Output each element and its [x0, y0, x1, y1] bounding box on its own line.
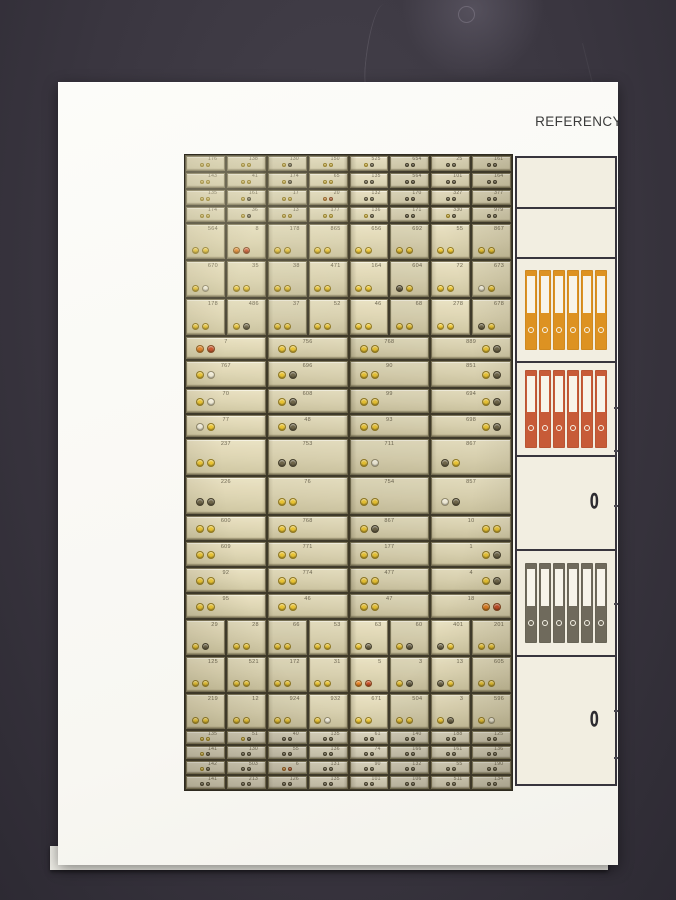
- deposit-box: 176: [186, 156, 225, 171]
- deposit-box: 694: [431, 389, 511, 413]
- zero-mark: 0: [590, 709, 599, 730]
- binder-label-window: [541, 569, 549, 606]
- keyhole-icon: [405, 163, 409, 167]
- keyholes: [478, 285, 495, 292]
- box-row: 927744774: [186, 568, 511, 592]
- keyholes: [482, 525, 501, 533]
- keyhole-icon: [452, 767, 456, 771]
- box-number: 41: [252, 174, 258, 180]
- box-number: 596: [494, 696, 504, 702]
- deposit-box: 40: [268, 731, 307, 744]
- keyholes: [355, 680, 372, 687]
- keyhole-icon: [282, 180, 286, 184]
- box-number: 125: [208, 659, 218, 665]
- keyholes: [323, 737, 333, 741]
- deposit-box: 237: [186, 439, 266, 475]
- keyhole-icon: [206, 197, 210, 201]
- keyhole-icon: [371, 603, 379, 611]
- keyhole-icon: [196, 577, 204, 585]
- keyholes: [396, 285, 413, 292]
- keyholes: [282, 180, 292, 184]
- keyhole-icon: [200, 737, 204, 741]
- keyhole-icon: [364, 180, 368, 184]
- keyholes: [314, 323, 331, 330]
- deposit-box: 10: [431, 516, 511, 540]
- keyhole-icon: [323, 214, 327, 218]
- keyholes: [487, 782, 497, 786]
- keyholes: [355, 643, 372, 650]
- box-number: 70: [187, 391, 265, 397]
- keyhole-icon: [452, 782, 456, 786]
- keyholes: [360, 525, 379, 533]
- box-number: 66: [293, 622, 300, 628]
- deposit-box: 8: [227, 224, 266, 259]
- keyhole-icon: [196, 551, 204, 559]
- keyhole-icon: [446, 767, 450, 771]
- keyhole-icon: [278, 423, 286, 431]
- keyhole-icon: [324, 285, 331, 292]
- keyhole-icon: [406, 323, 413, 330]
- box-number: 31: [334, 659, 341, 665]
- binder-icon: [567, 563, 579, 643]
- page-edge-notch: [614, 603, 618, 605]
- deposit-box: 753: [268, 439, 348, 475]
- keyholes: [196, 577, 215, 585]
- deposit-box: 132: [350, 190, 389, 205]
- keyholes: [200, 767, 210, 771]
- keyhole-icon: [493, 214, 497, 218]
- keyhole-icon: [196, 345, 204, 353]
- deposit-box: 164: [350, 261, 389, 297]
- box-number: 604: [412, 263, 422, 269]
- keyhole-icon: [441, 459, 449, 467]
- deposit-box: 135: [350, 173, 389, 188]
- keyhole-icon: [487, 782, 491, 786]
- box-row: 1351611720132170327377: [186, 190, 511, 205]
- keyhole-icon: [284, 285, 291, 292]
- box-number: 656: [371, 226, 381, 232]
- deposit-box: 177: [350, 542, 430, 566]
- keyhole-icon: [370, 752, 374, 756]
- keyhole-icon: [452, 498, 460, 506]
- keyhole-icon: [241, 782, 245, 786]
- binder-label-window: [555, 376, 563, 412]
- keyholes: [200, 752, 210, 756]
- deposit-box: 55: [431, 761, 470, 774]
- keyhole-icon: [329, 767, 333, 771]
- deposit-box: 3: [431, 694, 470, 729]
- keyhole-icon: [329, 163, 333, 167]
- deposit-box: 889: [431, 337, 511, 359]
- keyhole-icon: [360, 551, 368, 559]
- deposit-box: 521: [227, 657, 266, 692]
- keyhole-icon: [278, 371, 286, 379]
- keyholes: [446, 214, 456, 218]
- deposit-box: 932: [309, 694, 348, 729]
- keyhole-icon: [314, 285, 321, 292]
- keyhole-icon: [493, 163, 497, 167]
- box-number: 857: [432, 479, 510, 485]
- deposit-box: 867: [350, 516, 430, 540]
- keyhole-icon: [487, 180, 491, 184]
- keyhole-icon: [411, 163, 415, 167]
- box-row: 1434117465135564101164: [186, 173, 511, 188]
- deposit-box: 170: [390, 190, 429, 205]
- keyholes: [437, 643, 454, 650]
- keyhole-icon: [324, 643, 331, 650]
- deposit-box: 867: [431, 439, 511, 475]
- reference-row-binders: [517, 551, 615, 657]
- binder-hole-icon: [556, 425, 562, 431]
- box-number: 600: [187, 518, 265, 524]
- keyholes: [323, 197, 333, 201]
- keyhole-icon: [196, 525, 204, 533]
- keyhole-icon: [396, 323, 403, 330]
- keyhole-icon: [487, 737, 491, 741]
- keyhole-icon: [207, 371, 215, 379]
- deposit-box: 177: [309, 207, 348, 222]
- keyhole-icon: [447, 643, 454, 650]
- keyhole-icon: [207, 398, 215, 406]
- deposit-box: 126: [268, 776, 307, 789]
- keyhole-icon: [202, 643, 209, 650]
- keyholes: [364, 197, 374, 201]
- keyhole-icon: [241, 197, 245, 201]
- keyholes: [282, 752, 292, 756]
- box-number: 101: [453, 174, 462, 180]
- keyhole-icon: [274, 643, 281, 650]
- deposit-box: 77: [186, 415, 266, 437]
- box-number: 564: [208, 226, 218, 232]
- keyhole-icon: [452, 163, 456, 167]
- keyholes: [360, 577, 379, 585]
- deposit-box: 65: [309, 173, 348, 188]
- keyhole-icon: [478, 717, 485, 724]
- box-row: 17848637524668278678: [186, 299, 511, 335]
- keyhole-icon: [284, 680, 291, 687]
- keyholes: [437, 247, 454, 254]
- keyholes: [196, 459, 215, 467]
- deposit-box: 72: [431, 261, 470, 297]
- keyhole-icon: [360, 459, 368, 467]
- keyhole-icon: [488, 247, 495, 254]
- deposit-box: 188: [431, 731, 470, 744]
- deposit-box: 471: [309, 261, 348, 297]
- binder-label-window: [597, 276, 605, 313]
- deposit-box: 90: [350, 761, 389, 774]
- keyholes: [396, 680, 413, 687]
- deposit-box: 178: [268, 224, 307, 259]
- keyholes: [282, 163, 292, 167]
- binder-label-window: [527, 276, 535, 313]
- binder-label-window: [583, 276, 591, 313]
- keyholes: [278, 603, 297, 611]
- keyhole-icon: [487, 752, 491, 756]
- keyholes: [355, 323, 372, 330]
- keyhole-icon: [192, 247, 199, 254]
- keyhole-icon: [360, 423, 368, 431]
- keyholes: [323, 163, 333, 167]
- keyholes: [278, 498, 297, 506]
- keyhole-icon: [207, 498, 215, 506]
- keyhole-icon: [243, 323, 250, 330]
- keyholes: [487, 197, 497, 201]
- keyhole-icon: [493, 525, 501, 533]
- deposit-box: 174: [268, 173, 307, 188]
- keyhole-icon: [289, 459, 297, 467]
- box-number: 150: [331, 157, 340, 163]
- keyhole-icon: [355, 323, 362, 330]
- box-row: 22676754857: [186, 477, 511, 514]
- binder-label-window: [555, 569, 563, 606]
- keyhole-icon: [329, 752, 333, 756]
- keyhole-icon: [411, 180, 415, 184]
- box-row: 292866536360401201: [186, 620, 511, 655]
- keyhole-icon: [493, 577, 501, 585]
- box-row: 141213126135101106511134: [186, 776, 511, 789]
- keyhole-icon: [355, 285, 362, 292]
- keyhole-icon: [233, 247, 240, 254]
- keyholes: [314, 643, 331, 650]
- keyholes: [405, 214, 415, 218]
- keyholes: [360, 423, 379, 431]
- deposit-box: 13: [268, 207, 307, 222]
- keyhole-icon: [493, 752, 497, 756]
- box-row: 237753711867: [186, 439, 511, 475]
- box-number: 6: [296, 762, 299, 768]
- keyhole-icon: [487, 767, 491, 771]
- keyhole-icon: [314, 643, 321, 650]
- keyhole-icon: [202, 285, 209, 292]
- binder-hole-icon: [556, 620, 562, 626]
- deposit-box: 46: [268, 594, 348, 618]
- keyholes: [487, 767, 497, 771]
- keyholes: [360, 551, 379, 559]
- binder-label-window: [569, 569, 577, 606]
- box-number: 201: [494, 622, 504, 628]
- box-number: 3: [460, 696, 463, 702]
- keyhole-icon: [202, 247, 209, 254]
- binder-icon: [539, 563, 551, 643]
- keyholes: [482, 577, 501, 585]
- deposit-box: 604: [390, 261, 429, 297]
- deposit-box: 503: [227, 761, 266, 774]
- deposit-box: 201: [472, 620, 511, 655]
- box-number: 525: [372, 157, 381, 163]
- deposit-box: 130: [227, 746, 266, 759]
- binder-hole-icon: [542, 425, 548, 431]
- keyhole-icon: [206, 782, 210, 786]
- deposit-box: 140: [390, 731, 429, 744]
- box-number: 35: [252, 263, 259, 269]
- box-number: 161: [494, 157, 503, 163]
- keyhole-icon: [371, 525, 379, 533]
- box-number: 17: [293, 191, 299, 197]
- deposit-box: 13: [431, 657, 470, 692]
- keyholes: [446, 197, 456, 201]
- deposit-box: 135: [186, 190, 225, 205]
- keyhole-icon: [364, 214, 368, 218]
- keyholes: [233, 323, 250, 330]
- keyholes: [360, 371, 379, 379]
- box-row: 7060899694: [186, 389, 511, 413]
- deposit-box: 38: [268, 261, 307, 297]
- keyhole-icon: [478, 247, 485, 254]
- keyhole-icon: [411, 737, 415, 741]
- deposit-box: 37: [268, 299, 307, 335]
- deposit-box: 771: [268, 542, 348, 566]
- deposit-box: 135: [309, 731, 348, 744]
- keyholes: [323, 767, 333, 771]
- keyholes: [323, 180, 333, 184]
- keyhole-icon: [289, 603, 297, 611]
- keyhole-icon: [370, 214, 374, 218]
- keyhole-icon: [278, 603, 286, 611]
- box-number: 867: [351, 518, 429, 524]
- deposit-box: 52: [309, 299, 348, 335]
- page-edge-notch: [614, 710, 618, 712]
- box-number: 694: [432, 391, 510, 397]
- keyhole-icon: [192, 285, 199, 292]
- box-number: 678: [494, 301, 504, 307]
- keyhole-icon: [278, 498, 286, 506]
- deposit-box: 135: [309, 776, 348, 789]
- keyholes: [196, 345, 215, 353]
- keyhole-icon: [282, 752, 286, 756]
- deposit-box: 174: [186, 207, 225, 222]
- keyhole-icon: [274, 680, 281, 687]
- box-number: 46: [375, 301, 382, 307]
- box-number: 174: [290, 174, 299, 180]
- deposit-box: 226: [186, 477, 266, 514]
- deposit-box: 656: [350, 224, 389, 259]
- deposit-box: 99: [350, 389, 430, 413]
- keyhole-icon: [447, 323, 454, 330]
- keyhole-icon: [447, 285, 454, 292]
- box-number: 979: [494, 208, 503, 214]
- deposit-box: 696: [268, 361, 348, 387]
- keyhole-icon: [371, 498, 379, 506]
- binder-icon: [553, 270, 565, 350]
- binder-hole-icon: [570, 327, 576, 333]
- keyholes: [241, 737, 251, 741]
- keyhole-icon: [241, 214, 245, 218]
- deposit-box: 754: [350, 477, 430, 514]
- binder-hole-icon: [584, 425, 590, 431]
- deposit-box: 70: [186, 389, 266, 413]
- keyholes: [196, 551, 215, 559]
- keyholes: [196, 371, 215, 379]
- box-number: 278: [453, 301, 463, 307]
- keyhole-icon: [247, 737, 251, 741]
- box-row: 125521172315313605: [186, 657, 511, 692]
- keyholes: [446, 782, 456, 786]
- box-number: 138: [249, 157, 258, 163]
- vault-photo: 1761381301505256542516114341174651355641…: [185, 155, 512, 790]
- deposit-box: 132: [390, 761, 429, 774]
- box-number: 486: [249, 301, 259, 307]
- keyhole-icon: [282, 197, 286, 201]
- keyhole-icon: [243, 285, 250, 292]
- keyhole-icon: [247, 180, 251, 184]
- keyhole-icon: [206, 752, 210, 756]
- deposit-box: 53: [309, 620, 348, 655]
- keyhole-icon: [329, 782, 333, 786]
- binder-icon: [539, 370, 551, 448]
- box-number: 172: [290, 659, 300, 665]
- deposit-box: 29: [186, 620, 225, 655]
- box-number: 671: [371, 696, 381, 702]
- keyholes: [437, 717, 454, 724]
- box-number: 68: [416, 301, 423, 307]
- keyholes: [446, 767, 456, 771]
- box-number: 753: [269, 441, 347, 447]
- keyhole-icon: [247, 214, 251, 218]
- keyhole-icon: [364, 767, 368, 771]
- binder-hole-icon: [584, 620, 590, 626]
- deposit-box: 90: [350, 361, 430, 387]
- box-number: 696: [269, 363, 347, 369]
- keyhole-icon: [405, 737, 409, 741]
- keyholes: [482, 603, 501, 611]
- keyhole-icon: [233, 323, 240, 330]
- keyhole-icon: [355, 247, 362, 254]
- keyhole-icon: [405, 197, 409, 201]
- keyholes: [200, 197, 210, 201]
- keyhole-icon: [493, 603, 501, 611]
- keyhole-icon: [411, 214, 415, 218]
- keyholes: [200, 782, 210, 786]
- keyhole-icon: [365, 285, 372, 292]
- keyholes: [478, 247, 495, 254]
- deposit-box: 692: [390, 224, 429, 259]
- box-number: 471: [331, 263, 341, 269]
- keyhole-icon: [288, 163, 292, 167]
- keyhole-icon: [478, 643, 485, 650]
- box-number: 47: [351, 596, 429, 602]
- keyholes: [364, 737, 374, 741]
- keyholes: [196, 603, 215, 611]
- keyholes: [196, 398, 215, 406]
- keyhole-icon: [487, 214, 491, 218]
- keyhole-icon: [488, 323, 495, 330]
- keyhole-icon: [274, 247, 281, 254]
- keyhole-icon: [324, 680, 331, 687]
- keyhole-icon: [207, 577, 215, 585]
- keyholes: [364, 767, 374, 771]
- keyhole-icon: [482, 525, 490, 533]
- keyhole-icon: [200, 163, 204, 167]
- keyholes: [482, 398, 501, 406]
- deposit-box: 76: [268, 477, 348, 514]
- deposit-box: 55: [431, 224, 470, 259]
- deposit-box: 136: [472, 746, 511, 759]
- keyholes: [487, 214, 497, 218]
- reference-table: 00: [515, 156, 617, 786]
- keyholes: [446, 180, 456, 184]
- box-number: 60: [416, 622, 423, 628]
- keyholes: [482, 423, 501, 431]
- box-row: 564817886565669255867: [186, 224, 511, 259]
- keyhole-icon: [233, 680, 240, 687]
- box-number: 711: [351, 441, 429, 447]
- box-number: 55: [457, 226, 464, 232]
- keyhole-icon: [323, 782, 327, 786]
- keyholes: [282, 197, 292, 201]
- deposit-box: 134: [472, 776, 511, 789]
- box-number: 136: [372, 208, 381, 214]
- keyhole-icon: [284, 247, 291, 254]
